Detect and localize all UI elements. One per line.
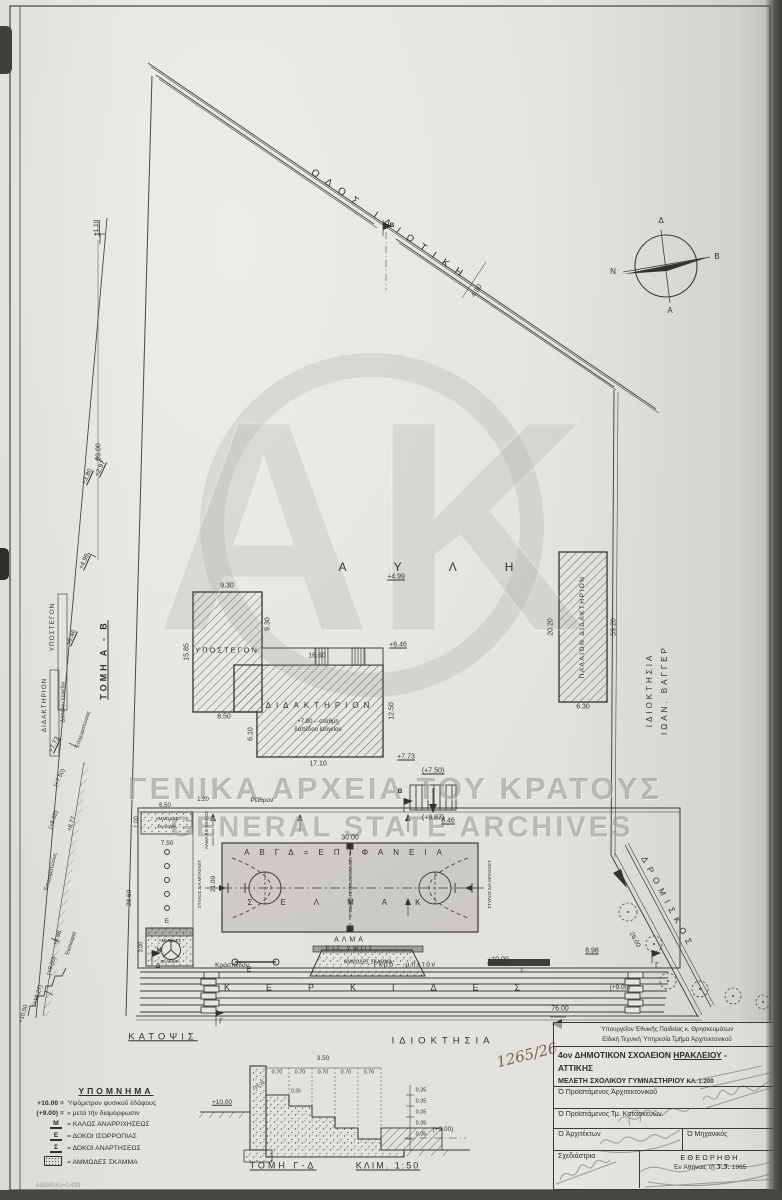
old-school-dim-bottom: 6.30	[576, 704, 590, 711]
approved-place: Ἐν Ἀθήναις τῇ	[674, 1164, 715, 1171]
spot-elevation-499: +4.99	[387, 574, 405, 581]
m-pit-label-1: ΑΜΜΩΔΕΣ	[159, 939, 182, 944]
curb-label: Κράσπεδον	[215, 963, 249, 970]
shed-dim-notch: 6.10	[248, 727, 255, 741]
section-gd-scale: ΚΛΙΜ. 1:50	[356, 1162, 421, 1171]
section-ab-floor-note: Δάπεδον Ἰσογείου	[62, 682, 67, 722]
long-jump-label: ΑΛΜΑ ΕΙΣ ΜΗΚΟΣ	[205, 811, 210, 849]
school-dim-right: 12.50	[389, 702, 396, 720]
old-school-label: ΠΑΛΑΙΟΝ ΔΙΔΑΚΤΗΡΙΟΝ	[580, 576, 587, 679]
approval-cell: ΕΘΕΩΡΗΘΗ Ἐν Ἀθήναις τῇ 5.5. 1965	[640, 1151, 780, 1188]
high-jump-label-1: ΑΛΜΑ	[334, 937, 366, 944]
tree-icons	[619, 903, 770, 1009]
title-block-architect-engineer: Ὁ Ἀρχιτέκτων Ὁ Μηχανικός	[554, 1129, 780, 1151]
long-jump-pit-width: 6.50	[159, 803, 171, 809]
marker-g2: Γ	[219, 1019, 223, 1026]
boundary-length-dim: 99.00	[96, 443, 103, 461]
spot-elevation-646: +6.46	[389, 642, 407, 649]
basket-post-left-note: ΣΤΥΛΟΣ ΔΙΑ ΜΠΑΣΚΕΤ	[198, 860, 203, 908]
title-block-head-construction: Ὁ Προϊστάμενος Τμ. Κατασκευῶν	[554, 1109, 780, 1129]
project-line-1b: ΗΡΑΚΛΕΙΟΥ	[673, 1050, 721, 1060]
plan-sheet: ΑΚ ΓΕΝΙΚΑ ΑΡΧΕΙΑ ΤΟΥ ΚΡΑΤΟΥΣ GENERAL STA…	[0, 0, 782, 1200]
legend-sym-900: (+9.00) =	[30, 1110, 64, 1117]
stairs-top-level: (+7.50)	[422, 768, 444, 775]
draftswoman-cell: Σχεδιάστρια	[554, 1151, 640, 1188]
archive-emblem: ΑΚ	[155, 358, 588, 694]
school-level-note-1: +7.80 – στάθμη	[297, 719, 338, 725]
study-title: ΜΕΛΕΤΗ ΣΧΟΛΙΚΟΥ ΓΥΜΝΑΣΤΗΡΙΟΥ	[558, 1076, 685, 1085]
gd-left-level: +10.00	[212, 1100, 232, 1107]
project-line-1c: -	[724, 1050, 727, 1060]
section-ab-school-label: ΔΙΔΑΚΤΗΡΙΟΝ	[42, 678, 49, 733]
old-school-dim-right: 59.20	[611, 618, 618, 636]
legend-row-sand-pit: = ΑΜΜΩΔΕΣ ΣΚΑΜΜΑ	[30, 1156, 202, 1168]
compass-label-right: Β	[714, 253, 719, 261]
scan-edge-right	[766, 0, 782, 1200]
court-width-dim: 30.00	[341, 835, 359, 842]
legend: ΥΠΟΜΝΗΜΑ +10.00 = Ὑψόμετρον φυσικοῦ ἐδάφ…	[30, 1086, 202, 1168]
legend-row-natural-ground: +10.00 = Ὑψόμετρον φυσικοῦ ἐδάφους	[30, 1100, 202, 1107]
bleachers-label: ΚΕΡΚΙΔΕΣ	[224, 984, 556, 993]
gd-dim-035-1: 0.35	[416, 1088, 427, 1094]
marker-e: Ε	[247, 967, 252, 974]
road-section-marker-b: Β	[390, 223, 395, 230]
legend-row-balance-beams: Ε = ΔΟΚΟΙ ΙΣΟΡΡΟΠΙΑΣ	[30, 1132, 202, 1141]
engineer-label: Ὁ Μηχανικός	[687, 1131, 728, 1138]
section-gd-title: ΤΟΜΗ Γ-Δ	[250, 1162, 317, 1171]
gd-dim-035-top: 0.35	[291, 1090, 301, 1095]
property-right-line2: ΙΩΑΝ. ΒΑΓΓΕΡ	[661, 645, 669, 735]
legend-text-sand-pit: = ΑΜΜΩΔΕΣ ΣΚΑΜΜΑ	[67, 1159, 138, 1166]
draftswoman-label: Σχεδιάστρια	[558, 1153, 595, 1160]
gd-dim-070-3: 0.70	[318, 1070, 329, 1076]
title-block-head-architect: Ὁ Προϊστάμενος Ἀρχιτεκτονικοῦ	[554, 1087, 780, 1109]
compass-icon	[623, 230, 710, 303]
old-school-dim-left: 20.20	[548, 618, 555, 636]
spot-elevation-110: +1.10	[94, 220, 101, 236]
agency-line-1: Ὑπουργεῖον Ἐθνικῆς Παιδείας κ. Θρησκευμά…	[558, 1025, 776, 1035]
bleachers-length-dim: 76.00	[551, 1006, 569, 1013]
sheet-corner-note: Α53Χ0.81=0.439	[36, 1183, 81, 1189]
gd-dim-035-3: 0.35	[416, 1110, 427, 1116]
m-pit-width-dim: 3.00	[139, 942, 145, 953]
approved-year: 1965	[732, 1164, 746, 1171]
marker-d: Δ	[156, 963, 161, 970]
scanned-architectural-sheet: { "archive": { "watermark_line1": "ΓΕΝΙΚ…	[0, 0, 782, 1200]
long-jump-pit-height: 1.00	[134, 816, 140, 828]
gutter-width-dim: 1.20	[197, 797, 209, 803]
legend-row-climbing-ropes: Μ = ΚΑΛΩΣ ΑΝΑΡΡΙΧΗΣΕΩΣ	[30, 1120, 202, 1129]
zone-height-dim: 28.60	[127, 890, 134, 906]
spot-elevation-900: (+9.00)	[610, 985, 631, 992]
legend-title: ΥΠΟΜΝΗΜΑ	[30, 1086, 202, 1096]
gd-dim-035-2: 0.35	[416, 1099, 427, 1105]
marker-s: Σ	[520, 968, 524, 975]
gd-right-level: (+9.00)	[433, 1127, 454, 1134]
section-ab-drawing	[28, 218, 107, 1018]
spot-elevation-1000: +10.00	[487, 957, 509, 964]
balance-beams-icon: Ε	[50, 1132, 62, 1141]
shed-dim-top: 9.30	[220, 583, 234, 590]
scan-edge-bottom	[0, 1190, 782, 1200]
head-construction-label: Ὁ Προϊστάμενος Τμ. Κατασκευῶν	[558, 1111, 662, 1118]
compass-label-bottom: Α	[667, 307, 672, 315]
head-architect-label: Ὁ Προϊστάμενος Ἀρχιτεκτονικοῦ	[558, 1089, 657, 1096]
section-ab-title: ΤΟΜΗ Α - Β	[100, 620, 109, 700]
dim-898: 8.98	[585, 948, 599, 955]
plan-linework: ΑΚ	[0, 0, 782, 1200]
approved-label: ΕΘΕΩΡΗΘΗ	[644, 1153, 776, 1162]
m-pit-symbol: Μ	[157, 948, 162, 954]
gd-dim-035-5: 0.35	[416, 1132, 427, 1138]
shed-dim-left: 15.85	[184, 643, 191, 661]
legend-sym-1000: +10.00 =	[30, 1100, 64, 1107]
agency-line-2: Εἰδική Τεχνική Ὑπηρεσία Τμῆμα Ἀρχιτεκτον…	[558, 1035, 776, 1045]
long-jump-pit-label-2: ΣΚΑΜΜΑ	[157, 825, 176, 830]
svg-text:ΑΚ: ΑΚ	[155, 358, 588, 694]
title-block-bottom: Σχεδιάστρια ΕΘΕΩΡΗΘΗ Ἐν Ἀθήναις τῇ 5.5. …	[554, 1151, 780, 1188]
approved-date: 5.5.	[717, 1163, 731, 1171]
balance-beams-marker: Ε	[165, 919, 169, 926]
title-block: Ὑπουργεῖον Ἐθνικῆς Παιδείας κ. Θρησκευμά…	[553, 1022, 781, 1190]
compass-label-top: Δ	[658, 217, 663, 225]
scan-blotch-top-left	[0, 26, 12, 74]
title-block-agency: Ὑπουργεῖον Ἐθνικῆς Παιδείας κ. Θρησκευμά…	[554, 1023, 780, 1047]
suspension-beams-icon: Σ	[50, 1144, 62, 1153]
sand-pit-icon	[44, 1156, 62, 1166]
courtyard-label: ΑΥΛΗ	[339, 561, 562, 573]
property-bottom-label: ΙΔΙΟΚΤΗΣΙΑ	[392, 1036, 495, 1046]
gd-dim-070-5: 0.70	[364, 1070, 375, 1076]
spot-elevation-773: +7.73	[397, 754, 415, 761]
gd-dim-070-4: 0.70	[341, 1070, 352, 1076]
project-line-1a: 4ον ΔΗΜΟΤΙΚΟΝ ΣΧΟΛΕΙΟΝ	[558, 1050, 671, 1060]
study-scale: ΚΛ. 1:200	[687, 1079, 714, 1085]
long-jump-pit-label-1: ΑΜΜΩΔΕΣ	[156, 817, 179, 822]
section-gd-drawing	[199, 1066, 470, 1162]
scan-blotch-left	[0, 548, 9, 580]
school-level-note-2: δαπέδου ἰσογείου	[294, 727, 341, 733]
long-jump-offset-dim: 7.50	[161, 841, 174, 848]
gd-dim-top: 3.50	[317, 1056, 330, 1063]
school-label: ΔΙΔΑΚΤΗΡΙΟΝ	[266, 702, 375, 710]
climbing-ropes-icon: Μ	[50, 1120, 62, 1129]
shed-dim-right: 9.30	[265, 617, 272, 631]
legend-text-natural-ground: Ὑψόμετρον φυσικοῦ ἐδάφους	[67, 1100, 156, 1107]
legend-text-formed-ground: » μετά τήν διαμόρφωσιν	[67, 1110, 139, 1117]
property-right-line1: ΙΔΙΟΚΤΗΣΙΑ	[646, 653, 654, 728]
school-dim-porch: 16.60	[308, 653, 326, 660]
m-pit-label-2: ΣΚΑΜΜΑ	[160, 960, 179, 965]
section-ab-shed-label: ΥΠΟΣΤΕΓΟΝ	[50, 603, 57, 652]
school-dim-bottom: 17.10	[309, 761, 327, 768]
gd-dim-070-1: 0.70	[272, 1070, 283, 1076]
stairs-section-marker-b: Β	[398, 789, 403, 796]
gd-dim-070-2: 0.70	[295, 1070, 306, 1076]
legend-text-suspension-beams: = ΔΟΚΟΙ ΑΝΑΡΤΗΣΕΩΣ	[67, 1145, 141, 1152]
archive-watermark-text-english: GENERAL STATE ARCHIVES	[171, 812, 634, 845]
legend-row-formed-ground: (+9.00) = » μετά τήν διαμόρφωσιν	[30, 1110, 202, 1117]
project-line-2: ΑΤΤΙΚΗΣ	[558, 1062, 776, 1075]
volley-posts-note: ΥΠΟΔΟΧΗ ΣΤΥΛΩΝ ΒΟΛΛΕΥ	[349, 856, 354, 917]
court-dim-846: 8.46	[441, 818, 455, 825]
legend-text-climbing-ropes: = ΚΑΛΩΣ ΑΝΑΡΡΙΧΗΣΕΩΣ	[67, 1121, 150, 1128]
architect-label: Ὁ Ἀρχιτέκτων	[558, 1131, 601, 1138]
plan-view-title: ΚΑΤΟΨΙΣ	[128, 1032, 197, 1042]
title-block-project: 4ον ΔΗΜΟΤΙΚΟΝ ΣΧΟΛΕΙΟΝ ΗΡΑΚΛΕΙΟΥ - ΑΤΤΙΚ…	[554, 1047, 780, 1087]
shed-dim-bottom: 8.50	[217, 714, 231, 721]
legend-text-balance-beams: = ΔΟΚΟΙ ΙΣΟΡΡΟΠΙΑΣ	[67, 1133, 137, 1140]
shed-label: ΥΠΟΣΤΕΓΟΝ	[195, 646, 259, 654]
legend-row-suspension-beams: Σ = ΔΟΚΟΙ ΑΝΑΡΤΗΣΕΩΣ	[30, 1144, 202, 1153]
court-height-dim: 21.00	[211, 876, 218, 892]
architect-cell: Ὁ Ἀρχιτέκτων	[554, 1129, 683, 1150]
gutter-label: Ρεῖθρον	[251, 798, 274, 805]
gd-dim-035-4: 0.35	[416, 1121, 427, 1127]
basket-post-right-note: ΣΤΥΛΟΣ ΔΙΑ ΜΠΑΣΚΕΤ.	[488, 860, 493, 909]
compass-label-left: Ν	[610, 268, 616, 276]
marker-g: Γ	[655, 963, 659, 970]
high-jump-label-2: ΕΙΣ ΥΨΟΣ	[325, 946, 374, 953]
gros-beton-label: Γκρό - μπετόν	[373, 962, 436, 969]
